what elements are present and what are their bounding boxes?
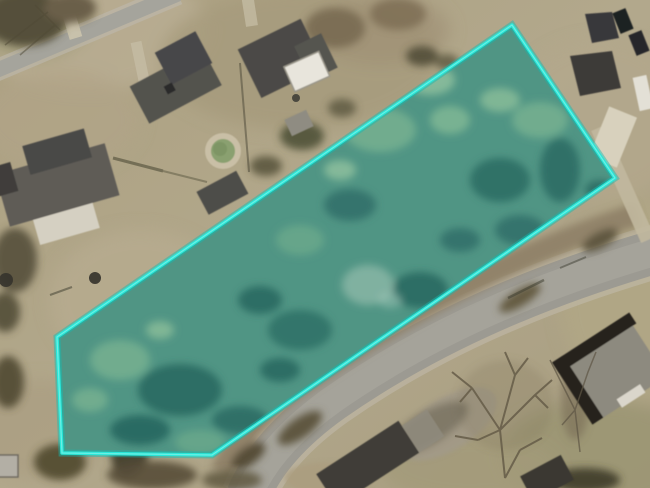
yard-object	[292, 94, 300, 102]
aerial-parcel-map	[0, 0, 650, 488]
shed-bottom-left	[0, 455, 18, 477]
driveway-upper-right	[247, 0, 252, 26]
circular-garden	[205, 133, 241, 169]
aerial-image	[0, 0, 650, 488]
yard-object	[89, 272, 101, 284]
